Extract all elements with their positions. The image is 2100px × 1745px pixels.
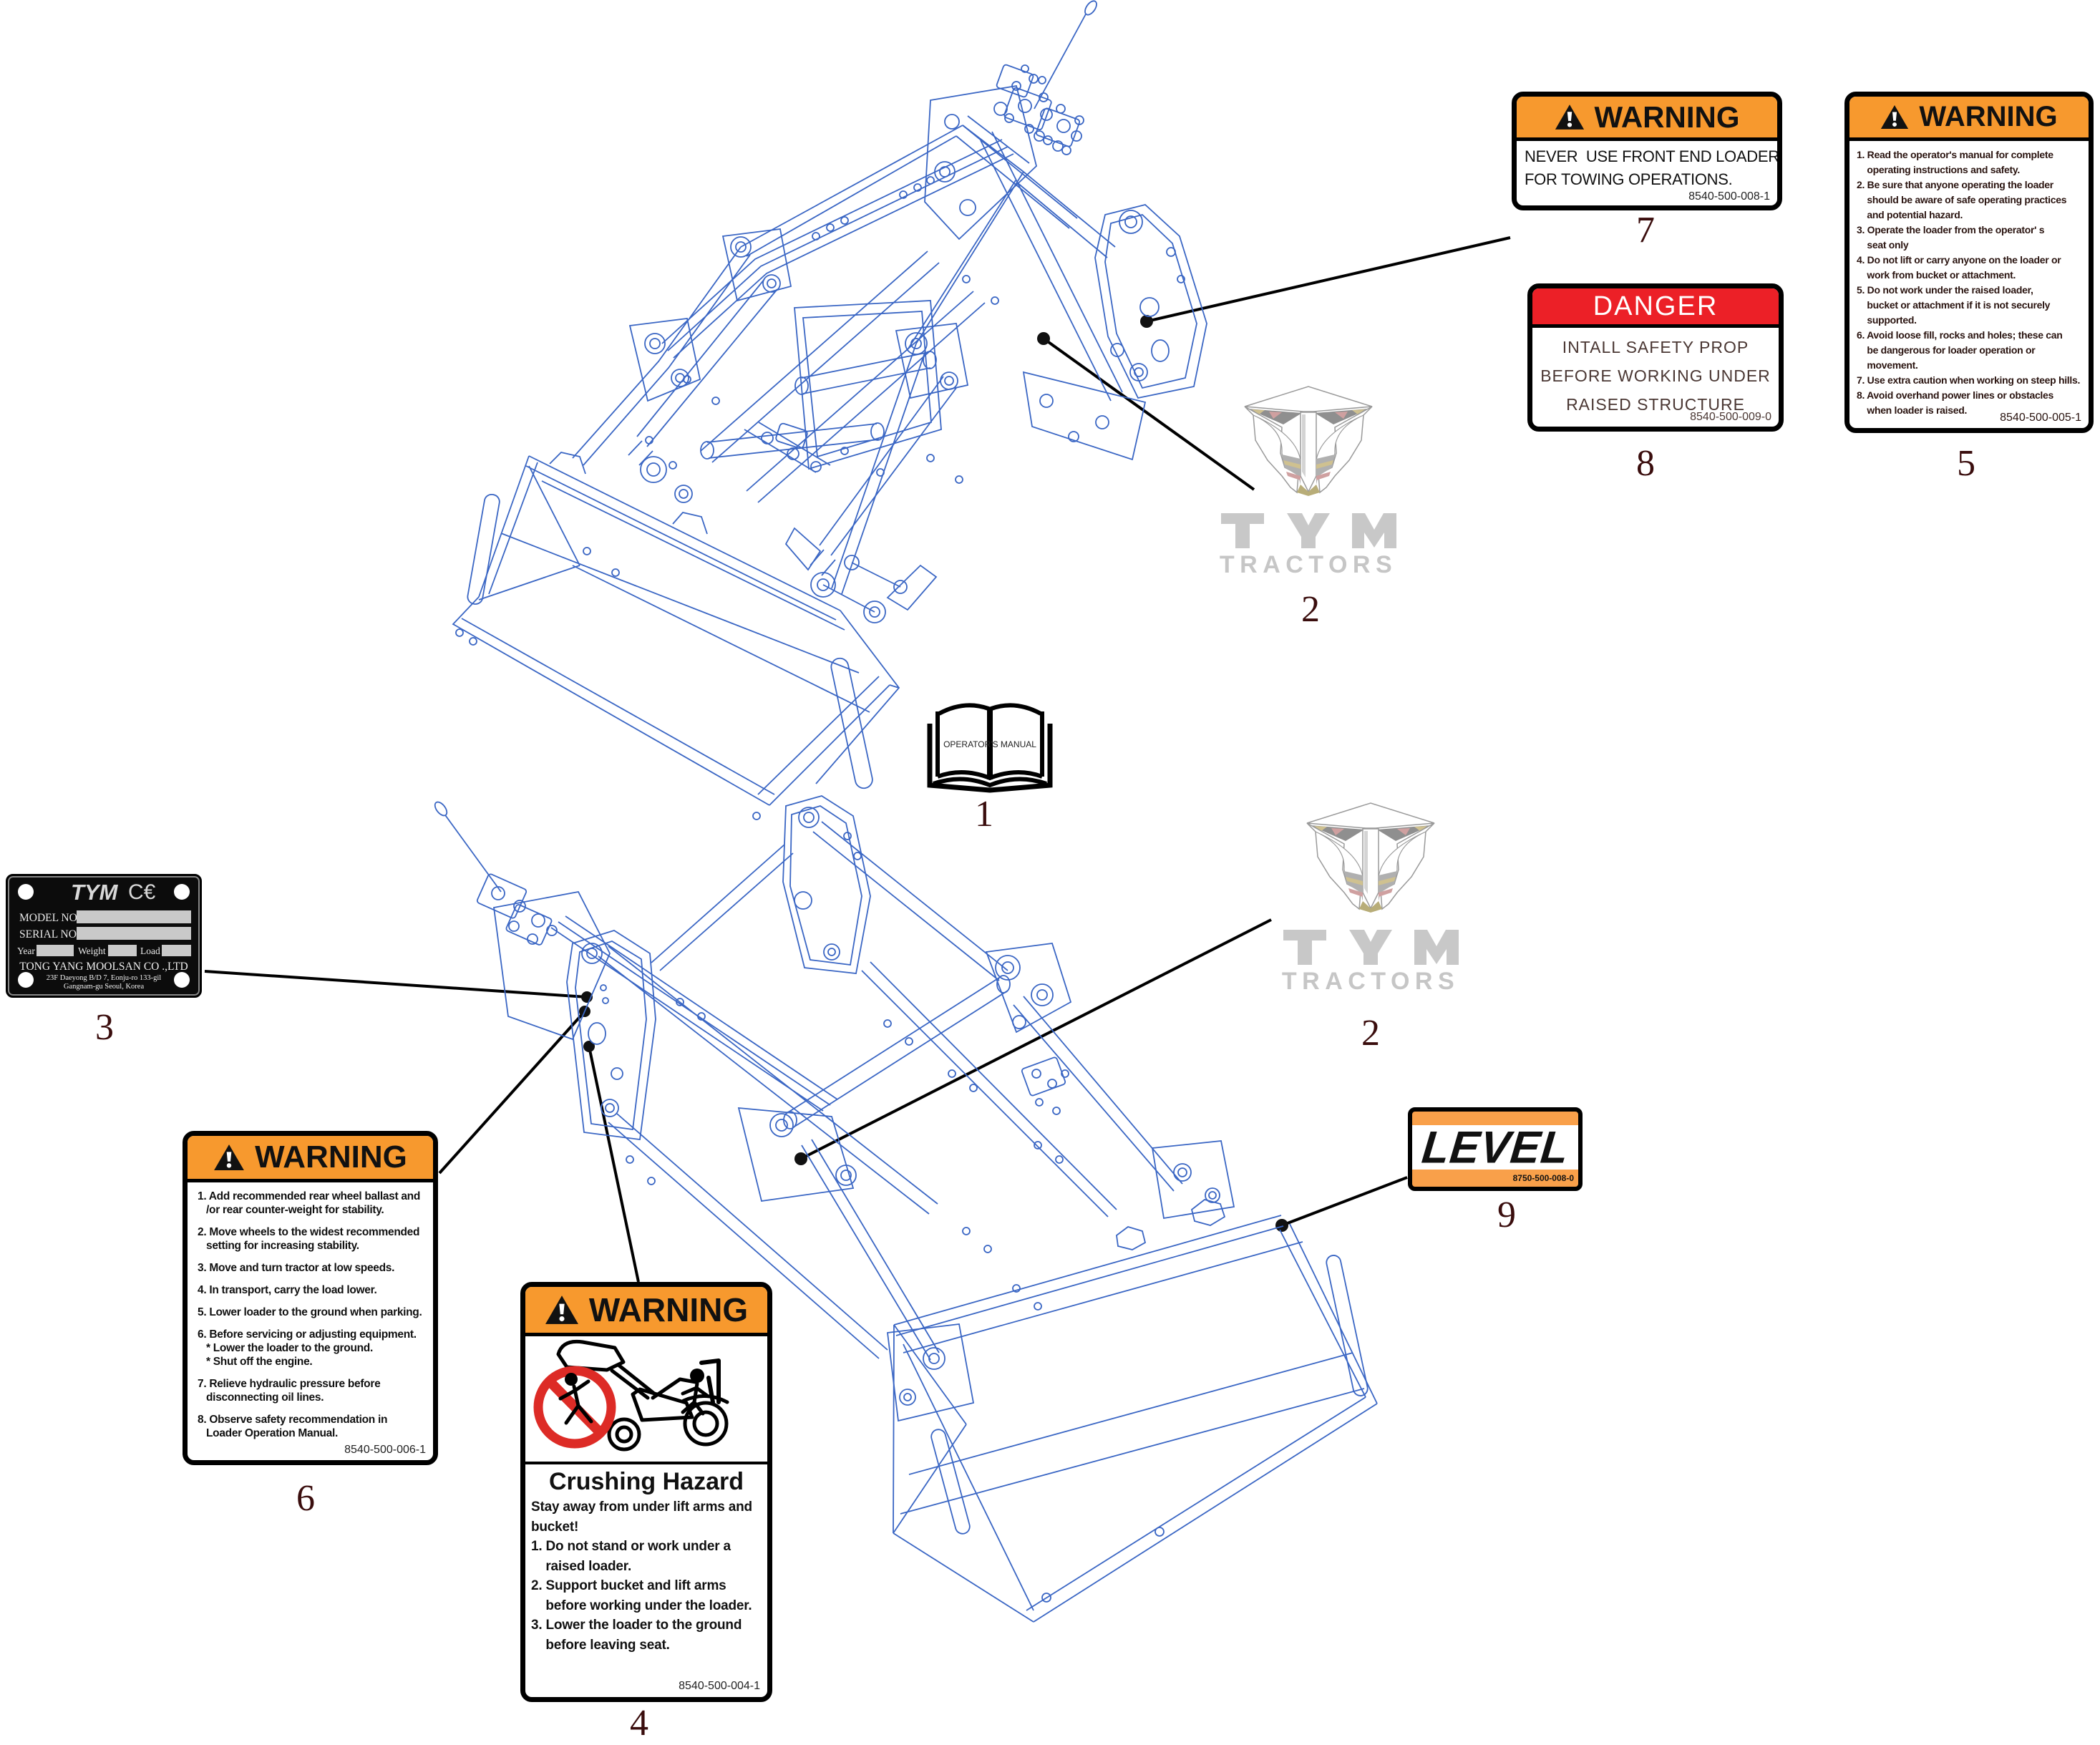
svg-text:Year: Year [17, 946, 35, 956]
svg-text:SERIAL NO.: SERIAL NO. [19, 928, 79, 940]
svg-text:23F Daeyong B/D 7, Eonju-ro 13: 23F Daeyong B/D 7, Eonju-ro 133-gil [47, 974, 161, 982]
svg-text:Load: Load [140, 946, 160, 956]
svg-text:Weight: Weight [78, 946, 106, 956]
svg-text:Gangnam-gu Seoul, Korea: Gangnam-gu Seoul, Korea [64, 983, 145, 991]
svg-text:OPERATOR'S MANUAL: OPERATOR'S MANUAL [943, 739, 1036, 749]
svg-text:C€: C€ [128, 880, 156, 904]
svg-text:TONG YANG MOOLSAN CO .,LTD: TONG YANG MOOLSAN CO .,LTD [19, 961, 188, 973]
svg-text:TYM: TYM [71, 880, 119, 905]
svg-text:MODEL NO.: MODEL NO. [19, 912, 80, 924]
